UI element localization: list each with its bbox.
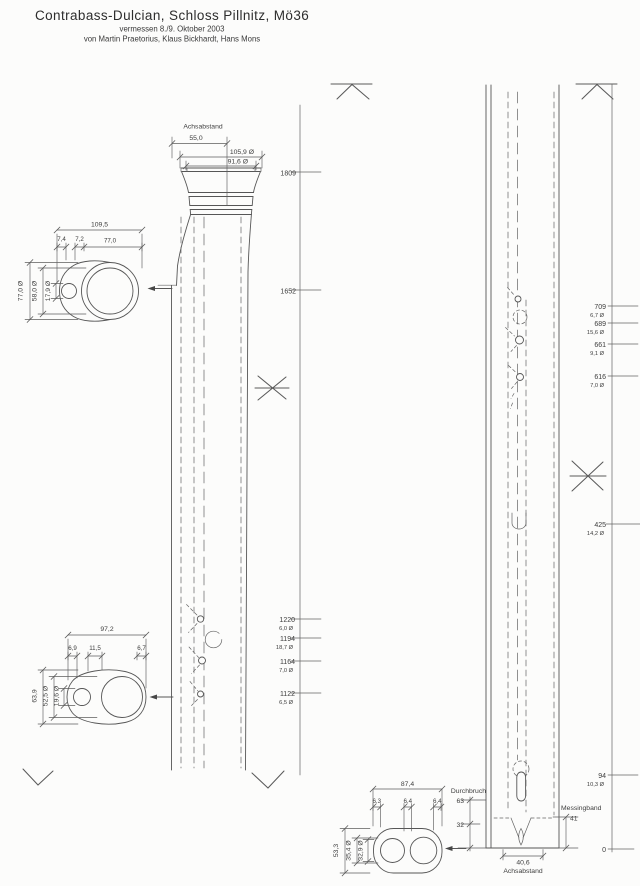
axis-tick-dia-1122: 6,5 Ø: [279, 700, 293, 706]
axis-tick-label-689: 689: [594, 321, 606, 328]
boot-bend-details: [494, 761, 553, 845]
achsabstand-value: 55,0: [189, 135, 202, 142]
boot-tone-holes: [506, 288, 528, 530]
tone-hole: [199, 657, 206, 664]
section-b-width-dimensions: 97,2 6,9 11,5 6,7: [65, 626, 149, 688]
cross-section-a: 109,5 7,4 7,2 77,0 77,0 Ø 58,0 Ø 17,9 Ø: [18, 222, 173, 323]
break-mark-bottom-left: [23, 769, 53, 785]
u-hook-detail: [512, 513, 526, 529]
header: Contrabass-Dulcian, Schloss Pillnitz, Mö…: [35, 8, 309, 44]
section-b-outline: [67, 670, 146, 724]
section-b-seg-3: 6,7: [137, 645, 146, 652]
boot-achsabstand-label: Achsabstand: [503, 868, 543, 875]
axis-tick-dia-616: 7,0 Ø: [590, 383, 604, 389]
section-a-seg-2: 7,2: [75, 236, 84, 243]
durchbruch-value: 63: [456, 798, 464, 805]
axis-tick-label-709: 709: [594, 304, 606, 311]
bell-inner-diameter: 91,6 Ø: [228, 159, 249, 166]
section-a-bore-diameter: 58,0 Ø: [32, 280, 39, 301]
break-mark-middle-right: [570, 461, 606, 491]
messingband-dimension: Messingband 41: [553, 805, 602, 851]
axis-tick-label-94: 94: [598, 773, 606, 780]
axis-tick-dia-1220: 6,0 Ø: [279, 626, 293, 632]
break-mark-top-right: [576, 84, 617, 99]
tone-hole: [198, 691, 204, 697]
hidden-tone-hole: [513, 310, 527, 324]
drawing-page: Contrabass-Dulcian, Schloss Pillnitz, Mö…: [0, 0, 640, 886]
axis-tick-dia-689: 15,6 Ø: [587, 330, 605, 336]
achsabstand-label: Achsabstand: [183, 124, 223, 131]
tone-hole: [517, 374, 524, 381]
section-c-outline: [374, 829, 443, 874]
lower-mark-value: 32: [456, 822, 464, 829]
axis-tick-dia-709: 6,7 Ø: [590, 313, 604, 319]
axis-tick-dia-661: 9,1 Ø: [590, 351, 604, 357]
section-c-outer-height: 53,3: [333, 844, 340, 857]
body-outline: [158, 215, 251, 771]
bore-slot: [517, 772, 526, 801]
boot-achsabstand-value: 40,6: [516, 860, 529, 867]
section-b-bore-diameter: 52,5 Ø: [43, 685, 50, 706]
axis-tick-label-1652: 1652: [280, 289, 296, 296]
tone-holes: [187, 605, 222, 706]
page-title: Contrabass-Dulcian, Schloss Pillnitz, Mö…: [35, 8, 309, 23]
section-b-outer-height: 63,9: [32, 689, 39, 702]
axis-tick-dia-1194: 18,7 Ø: [276, 645, 294, 651]
axis-tick-dia-94: 10,3 Ø: [587, 782, 605, 788]
tone-hole: [197, 616, 203, 622]
break-mark-middle-left: [255, 376, 289, 400]
bore-lines: [181, 217, 241, 768]
boot-outline: [486, 85, 559, 848]
section-c-width-dimensions: 87,4 6,3 6,4 6,4: [370, 781, 445, 831]
cross-section-b: 97,2 6,9 11,5 6,7 63,9 52,5 Ø 19,6 Ø: [32, 626, 174, 727]
section-c-arrow: [445, 846, 466, 851]
upper-elevation: Achsabstand 55,0 105,9 Ø 91,6 Ø 1809 165…: [158, 105, 321, 775]
measurement-date: vermessen 8./9. Oktober 2003: [120, 25, 225, 34]
section-a-width-dimensions: 109,5 7,4 7,2 77,0: [54, 222, 145, 283]
lower-elevation: Durchbruch 63 32 Messingband 41 40,6 Ach…: [451, 84, 640, 875]
section-c-height-dimensions: 53,3 35,4 Ø 32,9 Ø: [333, 825, 378, 876]
axis-tick-label-0: 0: [602, 847, 606, 854]
section-c-bore-diameter-1: 35,4 Ø: [346, 840, 353, 861]
section-c-bore-diameter-2: 32,9 Ø: [358, 840, 365, 861]
axis-tick-dia-425: 14,2 Ø: [587, 531, 605, 537]
tone-hole: [515, 296, 521, 302]
axis-tick-label-1122: 1122: [280, 691, 295, 698]
messingband-label: Messingband: [561, 805, 602, 812]
break-marks: [23, 84, 617, 788]
axis-tick-label-1194: 1194: [280, 636, 295, 643]
break-mark-bottom-center: [252, 771, 284, 788]
durchbruch-label: Durchbruch: [451, 788, 486, 795]
break-mark-top-left: [331, 84, 372, 99]
axis-tick-label-1164: 1164: [280, 659, 295, 666]
messingband-value: 41: [570, 816, 578, 823]
axis-tick-label-661: 661: [594, 342, 606, 349]
upper-measurement-axis: 1809 1652 1220 6,0 Ø 1194 18,7 Ø 1164 7,…: [276, 105, 321, 775]
boot-achsabstand-dimension: 40,6 Achsabstand: [500, 850, 546, 876]
section-a-seg-1: 7,4: [57, 236, 66, 243]
axis-tick-label-425: 425: [594, 522, 606, 529]
axis-tick-label-1220: 1220: [279, 617, 295, 624]
technical-drawing: Contrabass-Dulcian, Schloss Pillnitz, Mö…: [0, 0, 640, 886]
section-a-outline: [60, 261, 139, 321]
vent-ring: [205, 631, 222, 648]
section-a-seg-3: 77,0: [104, 238, 117, 245]
bell-outline: [181, 168, 261, 215]
axis-tick-label-1809: 1809: [280, 171, 296, 178]
section-b-seg-2: 11,5: [89, 645, 101, 652]
durchbruch-dimension: Durchbruch 63 32: [451, 788, 486, 851]
section-a-height-dimensions: 77,0 Ø 58,0 Ø 17,9 Ø: [18, 259, 87, 322]
authors-line: von Martin Praetorius, Klaus Bickhardt, …: [84, 35, 260, 44]
section-a-total-width: 109,5: [91, 222, 108, 229]
axis-tick-label-616: 616: [594, 374, 606, 381]
section-b-arrow: [150, 695, 174, 700]
section-b-seg-1: 6,9: [68, 645, 77, 652]
axis-tick-dia-1164: 7,0 Ø: [279, 668, 293, 674]
section-b-height-dimensions: 63,9 52,5 Ø 19,6 Ø: [32, 667, 98, 727]
cross-section-c: 87,4 6,3 6,4 6,4 53,3 35,4 Ø 32,9 Ø: [333, 781, 466, 876]
boot-bore-lines: [508, 92, 554, 815]
section-a-outer-height: 77,0 Ø: [18, 280, 25, 301]
section-a-arrow: [148, 286, 173, 291]
section-c-total-width: 87,4: [401, 781, 414, 788]
bell-outer-diameter: 105,9 Ø: [230, 149, 255, 156]
tone-hole: [516, 336, 524, 344]
section-b-total-width: 97,2: [100, 626, 113, 633]
